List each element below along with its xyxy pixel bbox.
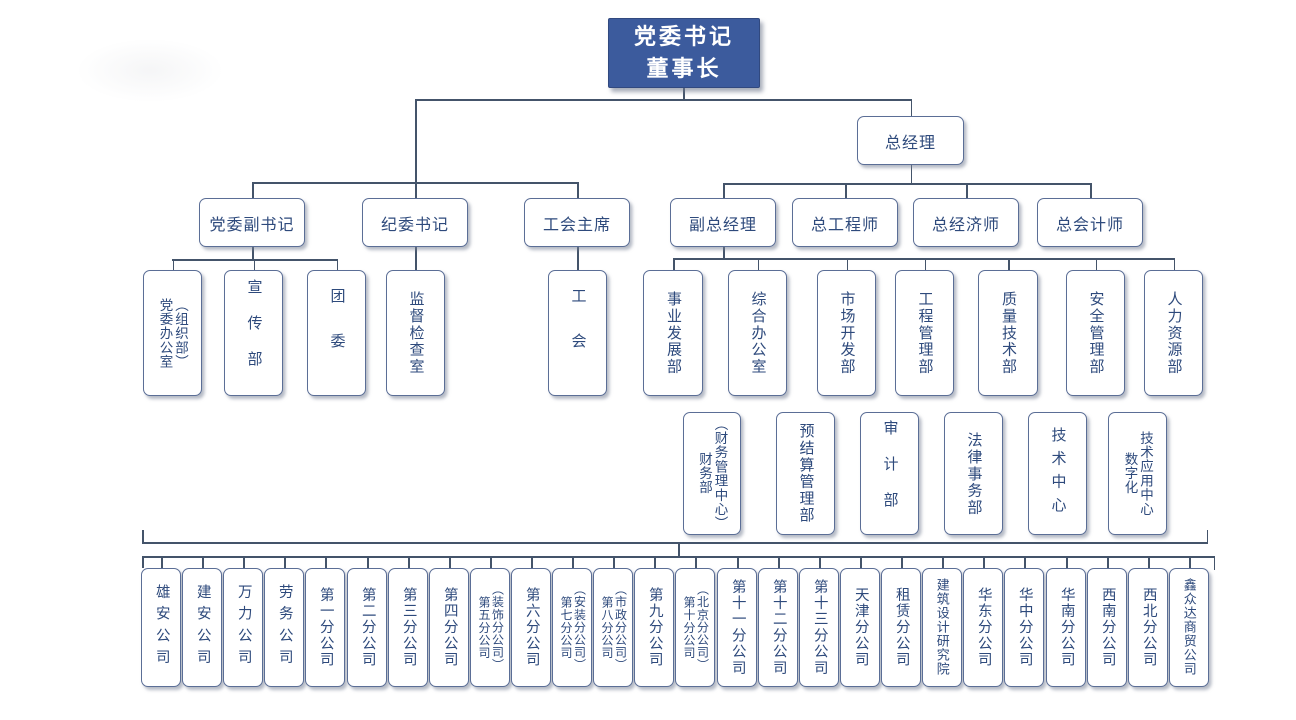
- node-digital-tech-center: 数字化 技术应用中心: [1108, 412, 1167, 535]
- node-chief-economist: 总经济师: [913, 198, 1019, 247]
- node-deputy-gm: 副总经理: [670, 198, 776, 247]
- node-label: 工程管理部: [916, 291, 934, 375]
- company-label: 第三分公司: [399, 587, 416, 668]
- company-node: 西北分公司: [1128, 568, 1168, 687]
- connector-drop: [252, 182, 254, 198]
- company-label: 第九分公司: [645, 587, 662, 668]
- connector-drop: [737, 556, 739, 568]
- connector-drop: [1008, 258, 1010, 270]
- connector-drop: [1174, 258, 1176, 270]
- company-node: 鑫众达商贸公司: [1169, 568, 1209, 687]
- node-label: 事业发展部: [664, 291, 682, 375]
- node-label: 团委: [328, 288, 346, 378]
- node-label: 副总经理: [689, 211, 757, 235]
- connector-csuite-bus: [723, 183, 1091, 185]
- company-label: 西南分公司: [1098, 587, 1115, 668]
- connector-drop: [942, 556, 944, 568]
- node-label: 质量技术部: [999, 291, 1017, 375]
- connector-drop: [367, 556, 369, 568]
- company-label: 第四分公司: [440, 587, 457, 668]
- watermark: [75, 38, 225, 103]
- node-business-development-dept: 事业发展部: [643, 270, 703, 396]
- node-label: 总工程师: [811, 211, 879, 235]
- bracket-lower-right-tick: [1214, 556, 1216, 570]
- node-chairman: 党委书记 董事长: [608, 18, 760, 88]
- company-node: 第九分公司: [634, 568, 674, 687]
- node-technology-center: 技术中心: [1028, 412, 1087, 535]
- company-label: 第十分公司 （北京分公司）: [682, 583, 709, 671]
- node-label: 总会计师: [1056, 211, 1124, 235]
- connector-drop: [572, 556, 574, 568]
- connector-drop: [966, 183, 968, 198]
- company-node: 第十分公司 （北京分公司）: [675, 568, 715, 687]
- node-legal-affairs-dept: 法律事务部: [944, 412, 1003, 535]
- node-label: 工会主席: [543, 211, 611, 235]
- connector-drop: [613, 556, 615, 568]
- company-node: 第四分公司: [429, 568, 469, 687]
- company-node: 万力公司: [223, 568, 263, 687]
- node-label: 数字化 技术应用中心: [1122, 431, 1153, 516]
- node-label: 法律事务部: [965, 432, 983, 516]
- node-audit-dept: 审计部: [860, 412, 919, 535]
- org-chart: 党委书记 董事长 总经理 党委副书记 纪委书记 工会主席 副总经理 总工程师 总…: [0, 0, 1296, 720]
- connector-dept-bus: [673, 258, 1174, 260]
- connector-drop: [860, 556, 862, 568]
- connector-top-bus: [415, 99, 912, 101]
- company-label: 雄安公司: [152, 584, 169, 671]
- connector-drop: [845, 183, 847, 198]
- connector-drop: [325, 556, 327, 568]
- company-label: 租赁分公司: [892, 587, 909, 668]
- connector-gonghui-drop: [577, 247, 579, 270]
- company-node: 第五分公司 （装饰分公司）: [470, 568, 510, 687]
- node-chief-accountant: 总会计师: [1037, 198, 1143, 247]
- bracket-upper-left-tick: [142, 530, 144, 542]
- node-label: 人力资源部: [1165, 291, 1183, 375]
- connector-drop: [654, 556, 656, 568]
- node-label: 安全管理部: [1087, 291, 1105, 375]
- connector-drop: [1096, 258, 1098, 270]
- company-node: 建筑设计研究院: [922, 568, 962, 687]
- company-label: 建安公司: [193, 584, 210, 671]
- node-label: 综合办公室: [749, 291, 767, 375]
- connector-drop: [490, 556, 492, 568]
- node-budget-settlement-dept: 预结算管理部: [776, 412, 835, 535]
- company-node: 建安公司: [182, 568, 222, 687]
- company-node: 第三分公司: [388, 568, 428, 687]
- node-label: 总经济师: [932, 211, 1000, 235]
- connector-gm-drop: [911, 165, 913, 183]
- node-label: 宣传部: [245, 279, 263, 387]
- company-node: 天津分公司: [840, 568, 880, 687]
- node-propaganda-dept: 宣传部: [224, 270, 283, 396]
- connector-vgm-drop: [723, 247, 725, 258]
- company-node: 第十一分公司: [717, 568, 757, 687]
- company-node: 西南分公司: [1087, 568, 1127, 687]
- connector-drop: [1024, 556, 1026, 568]
- connector-drop: [337, 259, 339, 270]
- company-label: 鑫众达商贸公司: [1181, 578, 1197, 676]
- connector-root-drop: [683, 88, 685, 99]
- connector-drop: [778, 556, 780, 568]
- connector-drop: [577, 182, 579, 198]
- company-label: 天津分公司: [851, 587, 868, 668]
- node-chairman-label: 党委书记 董事长: [634, 21, 734, 85]
- bracket-lower: [142, 556, 1215, 558]
- connector-drop: [673, 258, 675, 270]
- node-engineering-management-dept: 工程管理部: [895, 270, 954, 396]
- company-node: 华中分公司: [1004, 568, 1044, 687]
- company-node: 雄安公司: [141, 568, 181, 687]
- company-label: 第八分公司 （市政分公司）: [600, 583, 627, 671]
- node-label: 财务部 （财务管理中心）: [696, 417, 727, 530]
- node-label: 监督检查室: [407, 291, 425, 375]
- company-label: 第五分公司 （装饰分公司）: [477, 583, 504, 671]
- connector-drop: [408, 556, 410, 568]
- company-label: 第一分公司: [316, 587, 333, 668]
- company-node: 租赁分公司: [881, 568, 921, 687]
- node-market-development-dept: 市场开发部: [817, 270, 876, 396]
- node-label: 纪委书记: [381, 211, 449, 235]
- node-youth-league: 团委: [307, 270, 366, 396]
- company-node: 华东分公司: [963, 568, 1003, 687]
- connector-party-drop: [252, 247, 254, 259]
- connector-drop: [819, 556, 821, 568]
- node-safety-management-dept: 安全管理部: [1066, 270, 1125, 396]
- connector-drop: [202, 556, 204, 568]
- connector-drop: [1066, 556, 1068, 568]
- connector-drop: [723, 183, 725, 198]
- connector-drop: [449, 556, 451, 568]
- company-label: 万力公司: [234, 584, 251, 671]
- node-general-office: 综合办公室: [728, 270, 787, 396]
- bracket-lower-left-tick: [142, 556, 144, 568]
- company-label: 建筑设计研究院: [934, 578, 950, 676]
- company-node: 第一分公司: [305, 568, 345, 687]
- company-node: 第六分公司: [511, 568, 551, 687]
- company-node: 华南分公司: [1046, 568, 1086, 687]
- connector-jiwei-drop: [415, 247, 417, 270]
- company-node: 第七分公司 （安装分公司）: [552, 568, 592, 687]
- connector-drop: [1090, 183, 1092, 198]
- connector-drop: [925, 258, 927, 270]
- connector-drop: [161, 556, 163, 568]
- node-human-resources-dept: 人力资源部: [1144, 270, 1203, 396]
- company-label: 第十一分公司: [728, 579, 745, 676]
- connector-drop: [284, 556, 286, 568]
- node-deputy-party-secretary: 党委副书记: [199, 198, 305, 247]
- node-label: 审计部: [881, 420, 899, 528]
- bracket-center-link: [678, 542, 680, 556]
- company-label: 第七分公司 （安装分公司）: [559, 583, 586, 671]
- connector-drop: [1148, 556, 1150, 568]
- node-general-manager: 总经理: [857, 116, 964, 165]
- company-node: 第二分公司: [347, 568, 387, 687]
- company-node: 第八分公司 （市政分公司）: [593, 568, 633, 687]
- company-label: 第六分公司: [522, 587, 539, 668]
- company-node: 劳务公司: [264, 568, 304, 687]
- connector-drop: [758, 258, 760, 270]
- bracket-upper: [142, 542, 1208, 544]
- node-finance-dept: 财务部 （财务管理中心）: [683, 412, 741, 535]
- connector-drop: [901, 556, 903, 568]
- connector-drop: [695, 556, 697, 568]
- connector-drop: [1189, 556, 1191, 568]
- bracket-upper-right-tick: [1207, 530, 1209, 543]
- node-label: 总经理: [885, 129, 936, 153]
- company-label: 华中分公司: [1015, 587, 1032, 668]
- company-label: 第十三分公司: [810, 579, 827, 676]
- connector-left-feed: [415, 99, 417, 182]
- node-party-office: 党委办公室 （组织部）: [143, 270, 202, 396]
- connector-drop: [847, 258, 849, 270]
- node-labor-union: 工会: [548, 270, 607, 396]
- node-chief-engineer: 总工程师: [792, 198, 898, 247]
- node-union-chairman: 工会主席: [524, 198, 630, 247]
- company-label: 华南分公司: [1057, 587, 1074, 668]
- connector-drop: [415, 182, 417, 198]
- company-node: 第十二分公司: [758, 568, 798, 687]
- company-label: 西北分公司: [1139, 587, 1156, 668]
- connector-drop: [173, 259, 175, 270]
- company-node: 第十三分公司: [799, 568, 839, 687]
- node-label: 市场开发部: [838, 291, 856, 375]
- node-discipline-secretary: 纪委书记: [362, 198, 468, 247]
- node-label: 党委副书记: [209, 211, 294, 235]
- connector-drop: [531, 556, 533, 568]
- company-label: 劳务公司: [275, 584, 292, 671]
- connector-drop: [1107, 556, 1109, 568]
- connector-drop: [243, 556, 245, 568]
- company-label: 第二分公司: [358, 587, 375, 668]
- node-label: 工会: [569, 288, 587, 378]
- node-label: 技术中心: [1049, 427, 1067, 520]
- node-label: 党委办公室 （组织部）: [157, 298, 188, 369]
- company-label: 华东分公司: [974, 587, 991, 668]
- company-label: 第十二分公司: [769, 579, 786, 676]
- connector-gm-feed: [911, 99, 913, 116]
- connector-drop: [983, 556, 985, 568]
- node-quality-technology-dept: 质量技术部: [978, 270, 1038, 396]
- node-supervision-office: 监督检查室: [386, 270, 445, 396]
- node-label: 预结算管理部: [797, 423, 815, 524]
- connector-drop: [254, 259, 256, 270]
